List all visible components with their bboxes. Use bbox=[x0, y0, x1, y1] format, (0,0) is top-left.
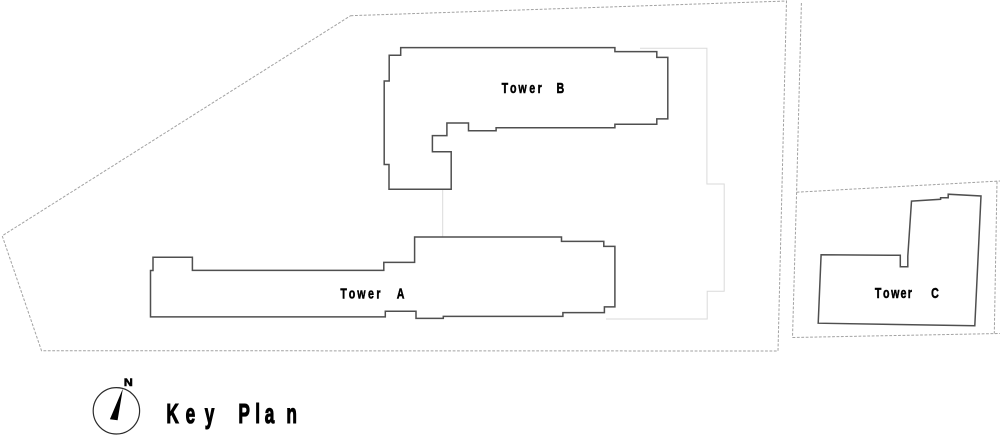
svg-text:y: y bbox=[205, 398, 215, 429]
svg-text:B: B bbox=[557, 79, 565, 96]
svg-text:o: o bbox=[510, 79, 517, 96]
svg-text:e: e bbox=[901, 284, 907, 301]
svg-text:T: T bbox=[502, 79, 509, 96]
svg-text:r: r bbox=[908, 284, 912, 301]
svg-text:e: e bbox=[529, 79, 535, 96]
svg-text:o: o bbox=[349, 285, 356, 302]
svg-text:a: a bbox=[265, 398, 275, 429]
svg-text:w: w bbox=[518, 79, 528, 96]
svg-text:P: P bbox=[238, 398, 249, 429]
svg-text:T: T bbox=[875, 284, 882, 301]
svg-text:o: o bbox=[883, 284, 890, 301]
svg-text:T: T bbox=[340, 285, 347, 302]
svg-text:A: A bbox=[397, 285, 405, 302]
svg-text:C: C bbox=[931, 284, 939, 301]
svg-text:K: K bbox=[166, 398, 179, 429]
svg-text:e: e bbox=[186, 398, 196, 429]
svg-text:N: N bbox=[124, 376, 133, 388]
svg-text:e: e bbox=[368, 285, 374, 302]
svg-text:w: w bbox=[890, 284, 900, 301]
svg-text:n: n bbox=[286, 398, 297, 429]
svg-text:w: w bbox=[356, 285, 366, 302]
svg-text:r: r bbox=[538, 79, 542, 96]
svg-text:r: r bbox=[376, 285, 380, 302]
svg-text:l: l bbox=[255, 398, 260, 429]
